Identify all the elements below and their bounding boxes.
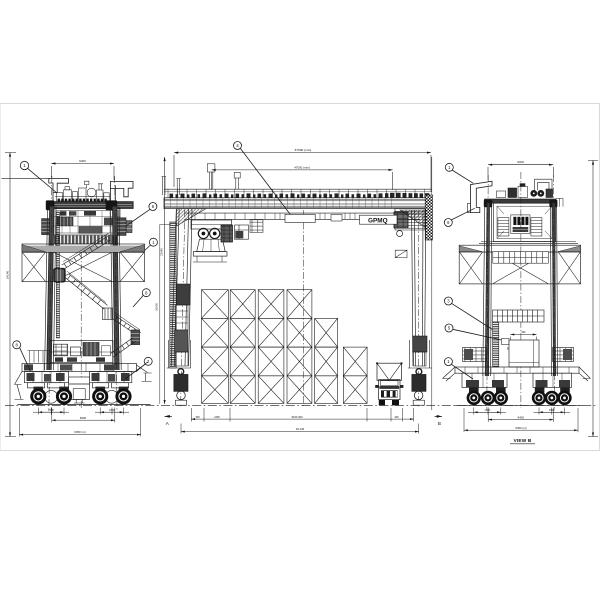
svg-text:6350 (m): 6350 (m) bbox=[74, 430, 85, 434]
svg-text:46 245: 46 245 bbox=[296, 427, 305, 431]
svg-text:300: 300 bbox=[395, 416, 400, 419]
svg-text:1500: 1500 bbox=[48, 408, 54, 412]
svg-text:9400: 9400 bbox=[517, 160, 524, 164]
svg-text:1: 1 bbox=[23, 163, 26, 168]
svg-text:1: 1 bbox=[152, 240, 155, 245]
svg-text:4: 4 bbox=[236, 143, 239, 148]
svg-text:A: A bbox=[166, 421, 170, 426]
svg-text:1500: 1500 bbox=[549, 408, 555, 412]
svg-text:21640: 21640 bbox=[159, 248, 163, 256]
svg-text:1: 1 bbox=[448, 165, 451, 170]
svg-text:VIEW B: VIEW B bbox=[514, 438, 532, 443]
svg-text:6: 6 bbox=[152, 204, 155, 209]
svg-text:57500 (mm): 57500 (mm) bbox=[295, 148, 312, 152]
svg-text:2450: 2450 bbox=[214, 416, 220, 419]
svg-text:24140: 24140 bbox=[6, 270, 10, 279]
svg-text:6350 (m): 6350 (m) bbox=[515, 426, 526, 430]
svg-text:8400: 8400 bbox=[518, 415, 525, 419]
svg-text:3: 3 bbox=[447, 299, 450, 304]
svg-text:2: 2 bbox=[147, 359, 150, 364]
svg-text:1500: 1500 bbox=[484, 408, 490, 412]
svg-text:1: 1 bbox=[447, 359, 450, 364]
svg-text:47000 (mm): 47000 (mm) bbox=[294, 165, 310, 169]
svg-text:9150 300: 9150 300 bbox=[292, 415, 303, 419]
svg-text:GPMQ: GPMQ bbox=[368, 217, 388, 224]
svg-text:5: 5 bbox=[448, 326, 451, 331]
svg-text:8400: 8400 bbox=[80, 416, 87, 420]
svg-text:B: B bbox=[438, 421, 441, 426]
svg-text:300: 300 bbox=[196, 416, 201, 419]
svg-text:8: 8 bbox=[16, 342, 19, 347]
svg-text:8: 8 bbox=[145, 290, 148, 295]
svg-text:1500: 1500 bbox=[109, 408, 115, 412]
svg-text:6: 6 bbox=[447, 220, 450, 225]
svg-text:16000: 16000 bbox=[155, 303, 159, 311]
svg-text:300: 300 bbox=[521, 331, 526, 334]
svg-text:9400: 9400 bbox=[79, 159, 86, 163]
